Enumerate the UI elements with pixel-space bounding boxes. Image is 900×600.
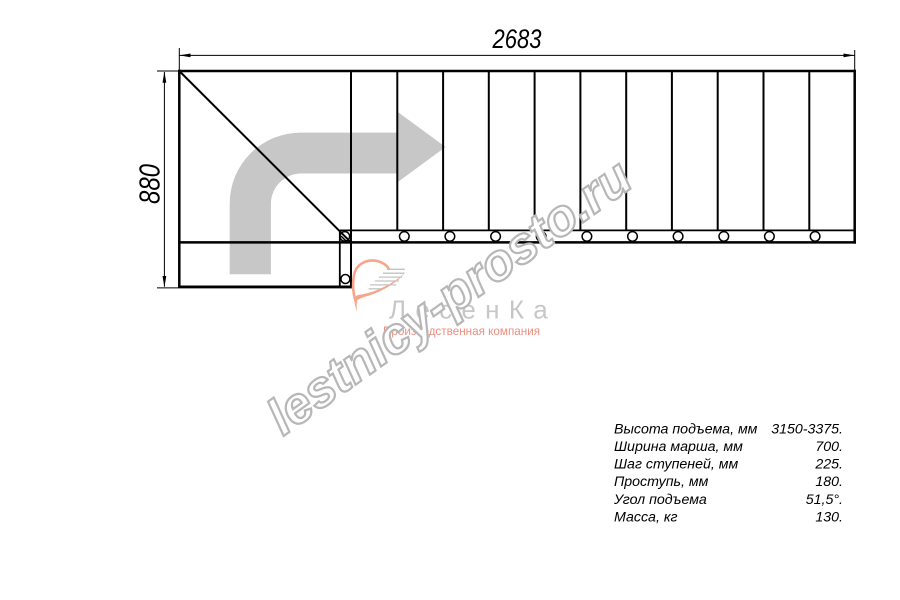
svg-text:180.: 180. xyxy=(815,474,843,490)
svg-text:3150-3375.: 3150-3375. xyxy=(771,421,843,437)
svg-text:Угол подъема: Угол подъема xyxy=(613,492,707,508)
svg-text:lestnicy-prosto.ru: lestnicy-prosto.ru xyxy=(256,148,641,446)
svg-text:Проступь, мм: Проступь, мм xyxy=(614,474,709,490)
svg-text:700.: 700. xyxy=(815,439,843,455)
svg-text:880: 880 xyxy=(135,164,167,204)
svg-text:130.: 130. xyxy=(815,509,843,525)
svg-text:2683: 2683 xyxy=(492,24,542,54)
svg-text:Масса, кг: Масса, кг xyxy=(614,509,678,525)
svg-text:Ширина марша, мм: Ширина марша, мм xyxy=(614,439,743,455)
svg-text:Шаг ступеней, мм: Шаг ступеней, мм xyxy=(614,457,738,473)
svg-text:51,5°.: 51,5°. xyxy=(806,492,843,508)
svg-text:225.: 225. xyxy=(814,457,843,473)
svg-text:Высота подъема, мм: Высота подъема, мм xyxy=(614,421,758,437)
